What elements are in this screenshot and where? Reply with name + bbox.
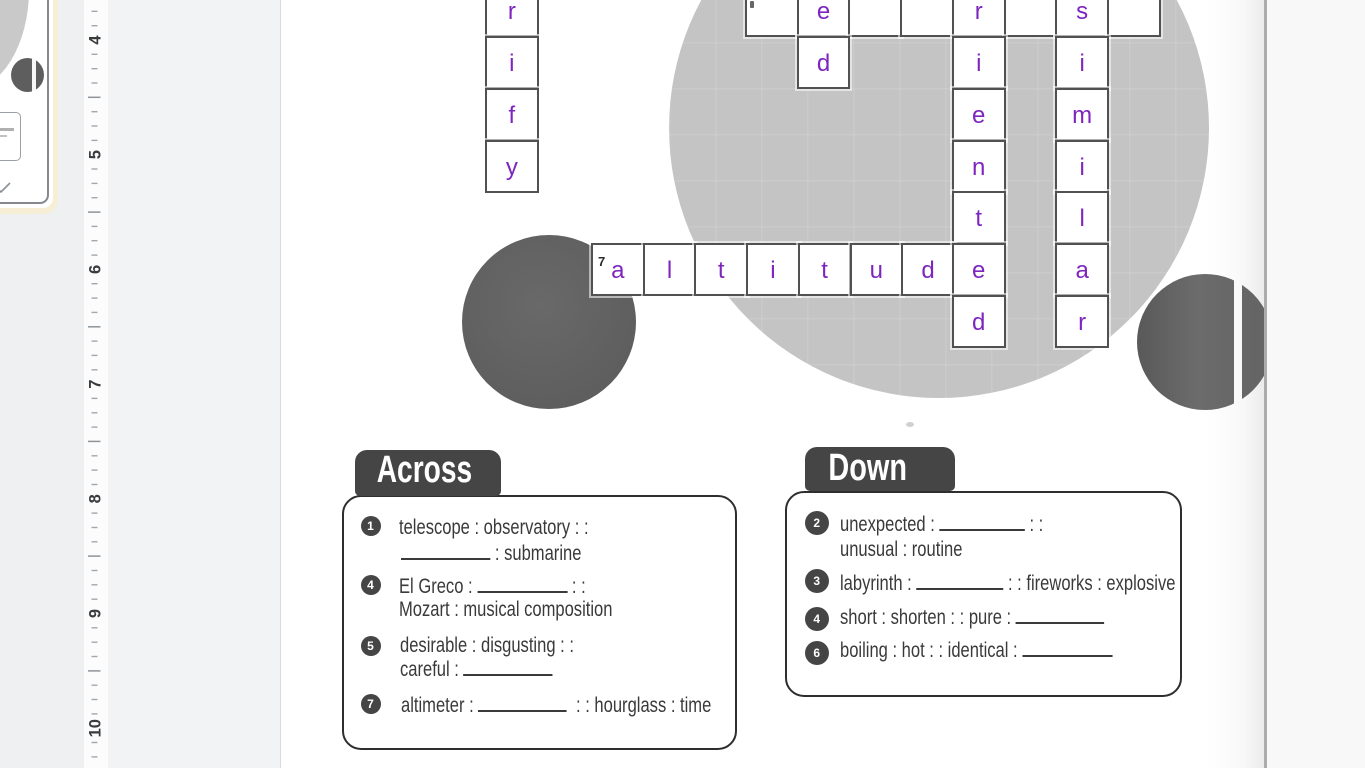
svg-text:10: 10	[87, 719, 105, 737]
svg-text:4: 4	[87, 35, 105, 45]
svg-text:9: 9	[87, 609, 105, 618]
svg-text:5: 5	[87, 150, 105, 159]
svg-text:8: 8	[87, 494, 105, 503]
svg-text:6: 6	[87, 265, 105, 274]
svg-text:7: 7	[87, 380, 105, 389]
